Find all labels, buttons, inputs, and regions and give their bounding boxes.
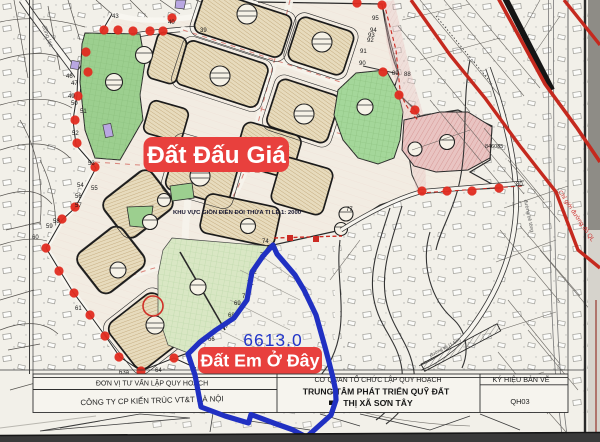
svg-text:89: 89 (392, 71, 399, 77)
svg-text:55: 55 (91, 186, 98, 192)
svg-text:47: 47 (71, 81, 78, 87)
svg-text:KÝ HIỆU BẢN VẼ: KÝ HIỆU BẢN VẼ (492, 375, 549, 384)
svg-text:50: 50 (71, 101, 78, 107)
svg-text:58: 58 (53, 219, 60, 225)
svg-text:90: 90 (359, 61, 366, 67)
svg-text:53: 53 (88, 161, 95, 167)
svg-text:61: 61 (75, 306, 82, 312)
svg-text:39: 39 (200, 28, 207, 34)
svg-text:QH03: QH03 (510, 397, 529, 406)
svg-text:52: 52 (72, 131, 79, 137)
svg-text:64: 64 (155, 368, 162, 374)
svg-text:59: 59 (46, 224, 53, 230)
svg-text:KHU VỰC GIỒN ĐIỀN ĐỔI THỬA TI: KHU VỰC GIỒN ĐIỀN ĐỔI THỬA TI LỆ 1: 2000 (173, 208, 302, 216)
svg-text:56: 56 (75, 194, 82, 200)
svg-text:74: 74 (262, 239, 269, 245)
svg-text:Đất Đấu Giá: Đất Đấu Giá (147, 142, 286, 169)
svg-text:43: 43 (112, 14, 119, 20)
svg-text:846085: 846085 (485, 144, 503, 150)
svg-text:TRUNG TÂM PHÁT TRIỂN QUỸ ĐẤT: TRUNG TÂM PHÁT TRIỂN QUỸ ĐẤT (303, 386, 450, 397)
svg-text:88: 88 (404, 72, 411, 78)
svg-text:91: 91 (360, 49, 367, 55)
svg-text:51: 51 (80, 109, 87, 115)
svg-text:46: 46 (66, 74, 73, 80)
svg-text:Đất Em Ở Đây: Đất Em Ở Đây (201, 350, 320, 371)
svg-text:94: 94 (370, 28, 377, 34)
svg-text:49: 49 (68, 94, 75, 100)
svg-text:57: 57 (75, 203, 82, 209)
svg-text:77: 77 (346, 207, 353, 213)
svg-text:54: 54 (77, 183, 84, 189)
svg-text:80: 80 (516, 182, 523, 188)
svg-text:95: 95 (372, 16, 379, 22)
svg-text:40: 40 (168, 20, 175, 26)
svg-text:THỊ XÃ SƠN TÂY: THỊ XÃ SƠN TÂY (343, 397, 413, 408)
